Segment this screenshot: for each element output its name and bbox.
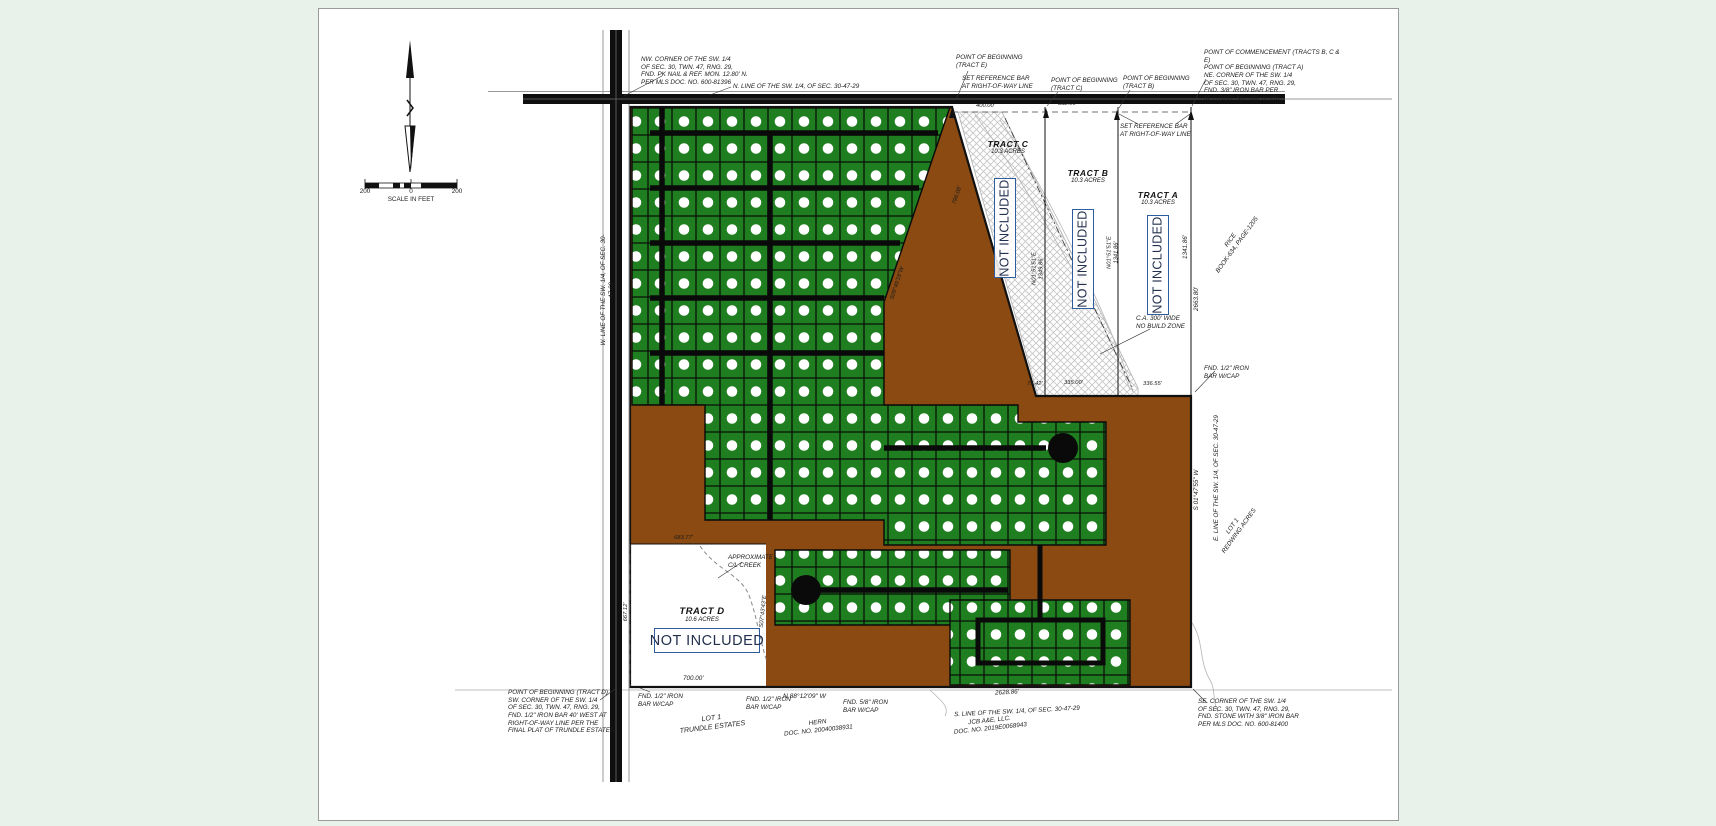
set-reference-bar-left: SET REFERENCE BAR AT RIGHT-OF-WAY LINE bbox=[962, 75, 1033, 90]
dim-700: 700.00' bbox=[683, 675, 703, 683]
se-corner-note: SE. CORNER OF THE SW. 1/4 OF SEC. 30, TW… bbox=[1198, 698, 1330, 729]
not-included-annotation-tract-a[interactable]: NOT INCLUDED bbox=[1147, 215, 1169, 315]
east-section-line-label: E. LINE OF THE SW. 1/4, OF SEC. 30-47-29 bbox=[1213, 403, 1221, 553]
west-section-line-label: W. LINE OF THE SW. 1/4, OF SEC. 30-47-29 bbox=[600, 230, 608, 350]
bearing-n8812: N 88°12'09" W bbox=[783, 693, 826, 701]
tract-c-label: TRACT C 10.3 ACRES bbox=[976, 139, 1040, 155]
pob-tract-b-label: POINT OF BEGINNING (TRACT B) bbox=[1123, 75, 1190, 90]
tract-a-label: TRACT A 10.3 ACRES bbox=[1126, 190, 1190, 206]
dim-335: 335.00' bbox=[1064, 380, 1083, 387]
scale-left-value: 200 bbox=[356, 188, 374, 196]
fnd-half-iron-ne: FND. 1/2" IRON BAR W/CAP bbox=[1204, 365, 1249, 380]
dim-2663: 2663.80' bbox=[1193, 269, 1201, 329]
scale-right-value: 200 bbox=[448, 188, 466, 196]
dim-332: 332.00' bbox=[1058, 101, 1077, 108]
dim-7542: 75.42' bbox=[1027, 381, 1043, 388]
dim-68377: 683.77' bbox=[674, 535, 693, 542]
tract-d-label: TRACT D 10.6 ACRES bbox=[660, 606, 744, 623]
fnd-58-iron: FND. 5/8" IRON BAR W/CAP bbox=[843, 699, 888, 714]
no-build-zone-note: C.A. 300' WIDE NO BUILD ZONE bbox=[1136, 315, 1185, 330]
approximate-creek-note: APPROXIMATE C/L CREEK bbox=[728, 554, 773, 569]
dim-1341: 1341.86' bbox=[1182, 217, 1190, 277]
scale-caption: SCALE IN FEET bbox=[374, 196, 448, 204]
sw-corner-note: POINT OF BEGINNING (TRACT D) SW. CORNER … bbox=[508, 689, 632, 735]
not-included-annotation-tract-d[interactable]: NOT INCLUDED bbox=[654, 628, 760, 653]
dim-2628: 2628.86' bbox=[995, 688, 1019, 697]
bearing-dim-1349: N01°51'51"E 1349.86' bbox=[1032, 237, 1047, 301]
ne-corner-note: POINT OF COMMENCEMENT (TRACTS B, C & E) … bbox=[1204, 49, 1344, 103]
not-included-annotation-tract-b[interactable]: NOT INCLUDED bbox=[1072, 209, 1094, 309]
tract-b-label: TRACT B 10.3 ACRES bbox=[1056, 168, 1120, 184]
plat-page: NW. CORNER OF THE SW. 1/4 OF SEC. 30, TW… bbox=[0, 0, 1716, 826]
pob-tract-c-label: POINT OF BEGINNING (TRACT C) bbox=[1051, 77, 1118, 92]
pob-tract-e-label: POINT OF BEGINNING (TRACT E) bbox=[956, 54, 1023, 69]
not-included-annotation-tract-c[interactable]: NOT INCLUDED bbox=[994, 178, 1016, 278]
dim-400: 400.00' bbox=[976, 103, 995, 110]
north-section-line-label: N. LINE OF THE SW. 1/4, OF SEC. 30-47-29 bbox=[733, 83, 859, 91]
bearing-dim-1341: N01°51'51"E 1341.86' bbox=[1107, 221, 1122, 285]
fnd-half-iron-sw: FND. 1/2" IRON BAR W/CAP bbox=[638, 693, 683, 708]
scale-zero-value: 0 bbox=[402, 188, 420, 196]
dim-66712: 667.12' bbox=[623, 590, 631, 634]
bearing-s0147: S 01°47'55" W bbox=[1193, 450, 1201, 530]
set-reference-bar-right: SET REFERENCE BAR AT RIGHT-OF-WAY LINE bbox=[1120, 123, 1191, 138]
dim-33655: 336.55' bbox=[1143, 381, 1162, 388]
